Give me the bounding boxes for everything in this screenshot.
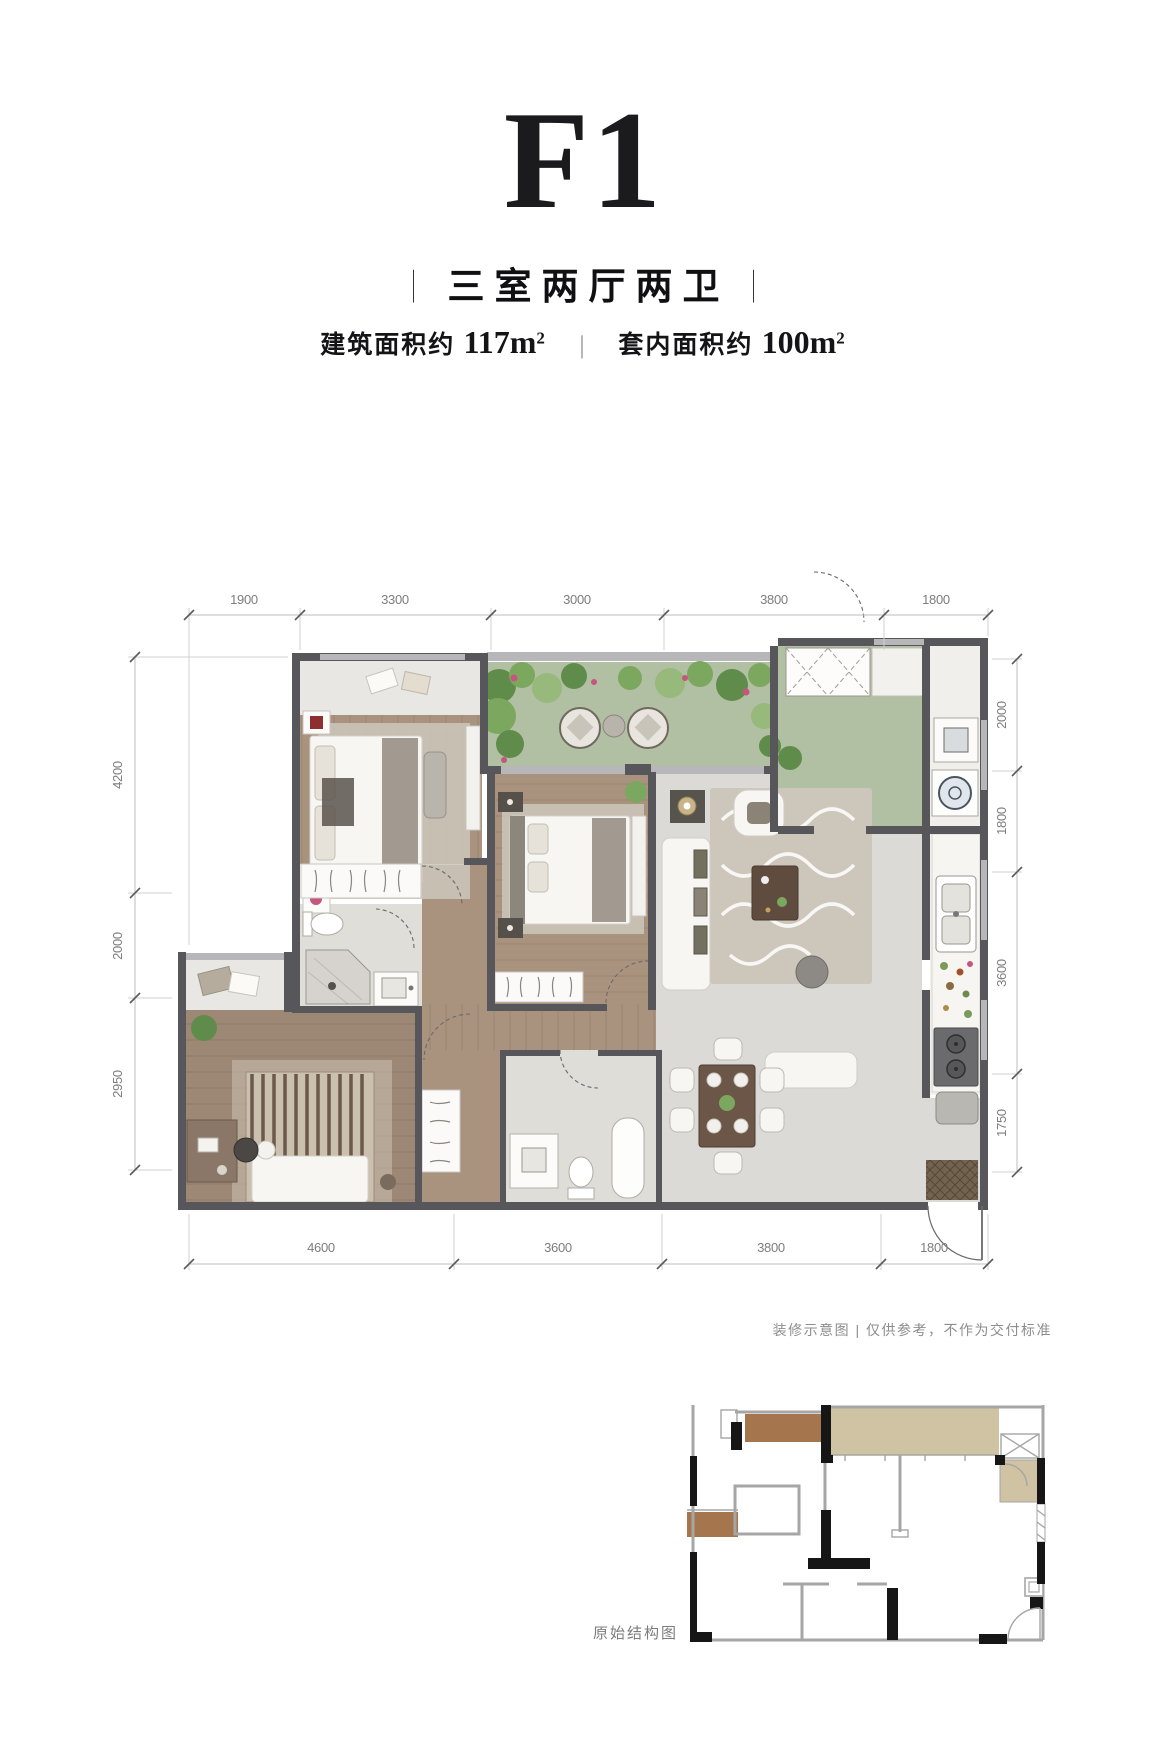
plate xyxy=(707,1073,721,1087)
master-window xyxy=(320,654,465,660)
dim-label: 1800 xyxy=(994,807,1009,835)
kitchen-sink-icon xyxy=(936,876,976,952)
master-wardrobe xyxy=(301,864,421,898)
bed-runner xyxy=(592,818,626,922)
plate xyxy=(734,1073,748,1087)
balcony-closet xyxy=(786,648,870,696)
area-divider: | xyxy=(581,332,585,360)
dim-label: 2000 xyxy=(110,932,125,960)
bedroom3-plant xyxy=(191,1015,217,1041)
area-line: 建筑面积约 117m2 | 套内面积约 100m2 xyxy=(0,324,1167,361)
dim-label: 4600 xyxy=(307,1240,335,1255)
toilet-icon xyxy=(303,912,343,936)
terrace-table xyxy=(603,715,625,737)
toilet-icon xyxy=(568,1157,594,1199)
kitchen-items xyxy=(932,834,980,1124)
bedroom2-wardrobe xyxy=(495,972,583,1002)
dim-label: 3000 xyxy=(563,592,591,607)
bedroom3-bed xyxy=(246,1072,374,1202)
bed-bench xyxy=(424,752,446,818)
net-area-value: 100m xyxy=(762,324,837,360)
bathroom-sink-icon xyxy=(374,972,418,1006)
centerpiece xyxy=(719,1095,735,1111)
basket xyxy=(380,1174,396,1190)
dining-chair xyxy=(670,1068,694,1092)
disclaimer-note: 装修示意图 | 仅供参考，不作为交付标准 xyxy=(0,1320,1052,1340)
bedroom2-plant xyxy=(625,781,647,803)
floor-plan-svg: 1900 3300 3000 3800 1800 4600 3600 3800 … xyxy=(70,520,1030,1310)
window xyxy=(981,860,987,940)
struct-lobby xyxy=(1000,1460,1040,1502)
balcony-cabinet xyxy=(872,648,926,696)
window xyxy=(981,1000,987,1060)
pillow xyxy=(257,1141,275,1159)
bedroom3-window xyxy=(186,953,286,960)
gross-area-value: 117m xyxy=(463,324,536,360)
sofa xyxy=(662,838,710,990)
gross-area-label: 建筑面积约 xyxy=(320,332,455,359)
entry-mat-pattern xyxy=(926,1160,978,1200)
dim-label: 1800 xyxy=(922,592,950,607)
throw-blanket xyxy=(322,778,354,826)
corridor-closet xyxy=(422,1090,460,1172)
struct-entry-door-arc xyxy=(1008,1608,1040,1640)
plate xyxy=(707,1119,721,1133)
structure-caption: 原始结构图 xyxy=(593,1622,678,1643)
dim-label: 1750 xyxy=(994,1109,1009,1137)
struct-terrace xyxy=(827,1407,999,1455)
stove-icon xyxy=(934,1028,978,1086)
bathtub-icon xyxy=(612,1118,644,1198)
dim-label: 2000 xyxy=(994,701,1009,729)
layout-subtitle: | 三室两厅两卫 | xyxy=(0,256,1167,310)
window xyxy=(981,720,987,790)
net-area-label: 套内面积约 xyxy=(618,332,753,359)
bed-runner xyxy=(382,738,418,882)
sofa-pillow xyxy=(694,888,707,916)
desk-chair xyxy=(234,1138,258,1162)
subtitle-left-bar: | xyxy=(412,262,416,304)
dim-label: 3800 xyxy=(760,592,788,607)
dim-label: 3600 xyxy=(994,959,1009,987)
pillow xyxy=(528,862,548,892)
dining-chair xyxy=(760,1108,784,1132)
subtitle-text: 三室两厅两卫 xyxy=(438,256,730,310)
struct-elevator xyxy=(1001,1434,1039,1458)
kitchen-cart xyxy=(936,1092,978,1124)
desk xyxy=(187,1120,237,1182)
bedroom2-dresser xyxy=(632,816,646,916)
dim-label: 1900 xyxy=(230,592,258,607)
nightstand-decor xyxy=(310,716,323,729)
floor-plan: 1900 3300 3000 3800 1800 4600 3600 3800 … xyxy=(70,520,1030,1310)
dining-chair xyxy=(670,1108,694,1132)
page-title: F1 xyxy=(0,84,1167,238)
balcony-plant xyxy=(778,746,802,770)
dim-label: 1800 xyxy=(920,1240,948,1255)
dining-chair xyxy=(714,1038,742,1060)
dim-label: 3600 xyxy=(544,1240,572,1255)
window xyxy=(874,639,924,645)
laptop xyxy=(198,1138,218,1152)
struct-window-hatch xyxy=(1037,1504,1045,1542)
struct-masonry xyxy=(745,1414,821,1442)
gross-area-sup: 2 xyxy=(536,329,547,348)
plate xyxy=(734,1119,748,1133)
dining-chair xyxy=(714,1152,742,1174)
master-bed xyxy=(310,736,422,884)
lamp xyxy=(507,925,513,931)
dim-label: 4200 xyxy=(110,761,125,789)
subtitle-right-bar: | xyxy=(751,262,755,304)
vanity-sink-icon xyxy=(510,1134,558,1188)
side-table xyxy=(670,790,705,823)
struct-bath xyxy=(735,1486,799,1534)
terrace-railing xyxy=(487,652,778,661)
struct-masonry xyxy=(687,1512,738,1537)
floorplan-poster: F1 | 三室两厅两卫 | 建筑面积约 117m2 | 套内面积约 100m2 xyxy=(0,0,1167,1751)
lamp xyxy=(507,799,513,805)
bedroom2-bed xyxy=(510,816,630,924)
sofa-pillow xyxy=(694,850,707,878)
dining-chair xyxy=(760,1068,784,1092)
ledge-pillow xyxy=(228,972,259,997)
sofa-pillow xyxy=(694,926,707,954)
armchair-cushion xyxy=(747,802,771,824)
washing-machine-icon xyxy=(932,770,978,816)
dim-label: 3300 xyxy=(381,592,409,607)
master-dresser xyxy=(466,726,480,830)
dim-label: 3800 xyxy=(757,1240,785,1255)
pillow xyxy=(528,824,548,854)
net-area-sup: 2 xyxy=(836,329,847,348)
laundry-sink-icon xyxy=(934,718,978,762)
pouf xyxy=(796,956,828,988)
coffee-table xyxy=(752,866,798,920)
dim-label: 2950 xyxy=(110,1070,125,1098)
